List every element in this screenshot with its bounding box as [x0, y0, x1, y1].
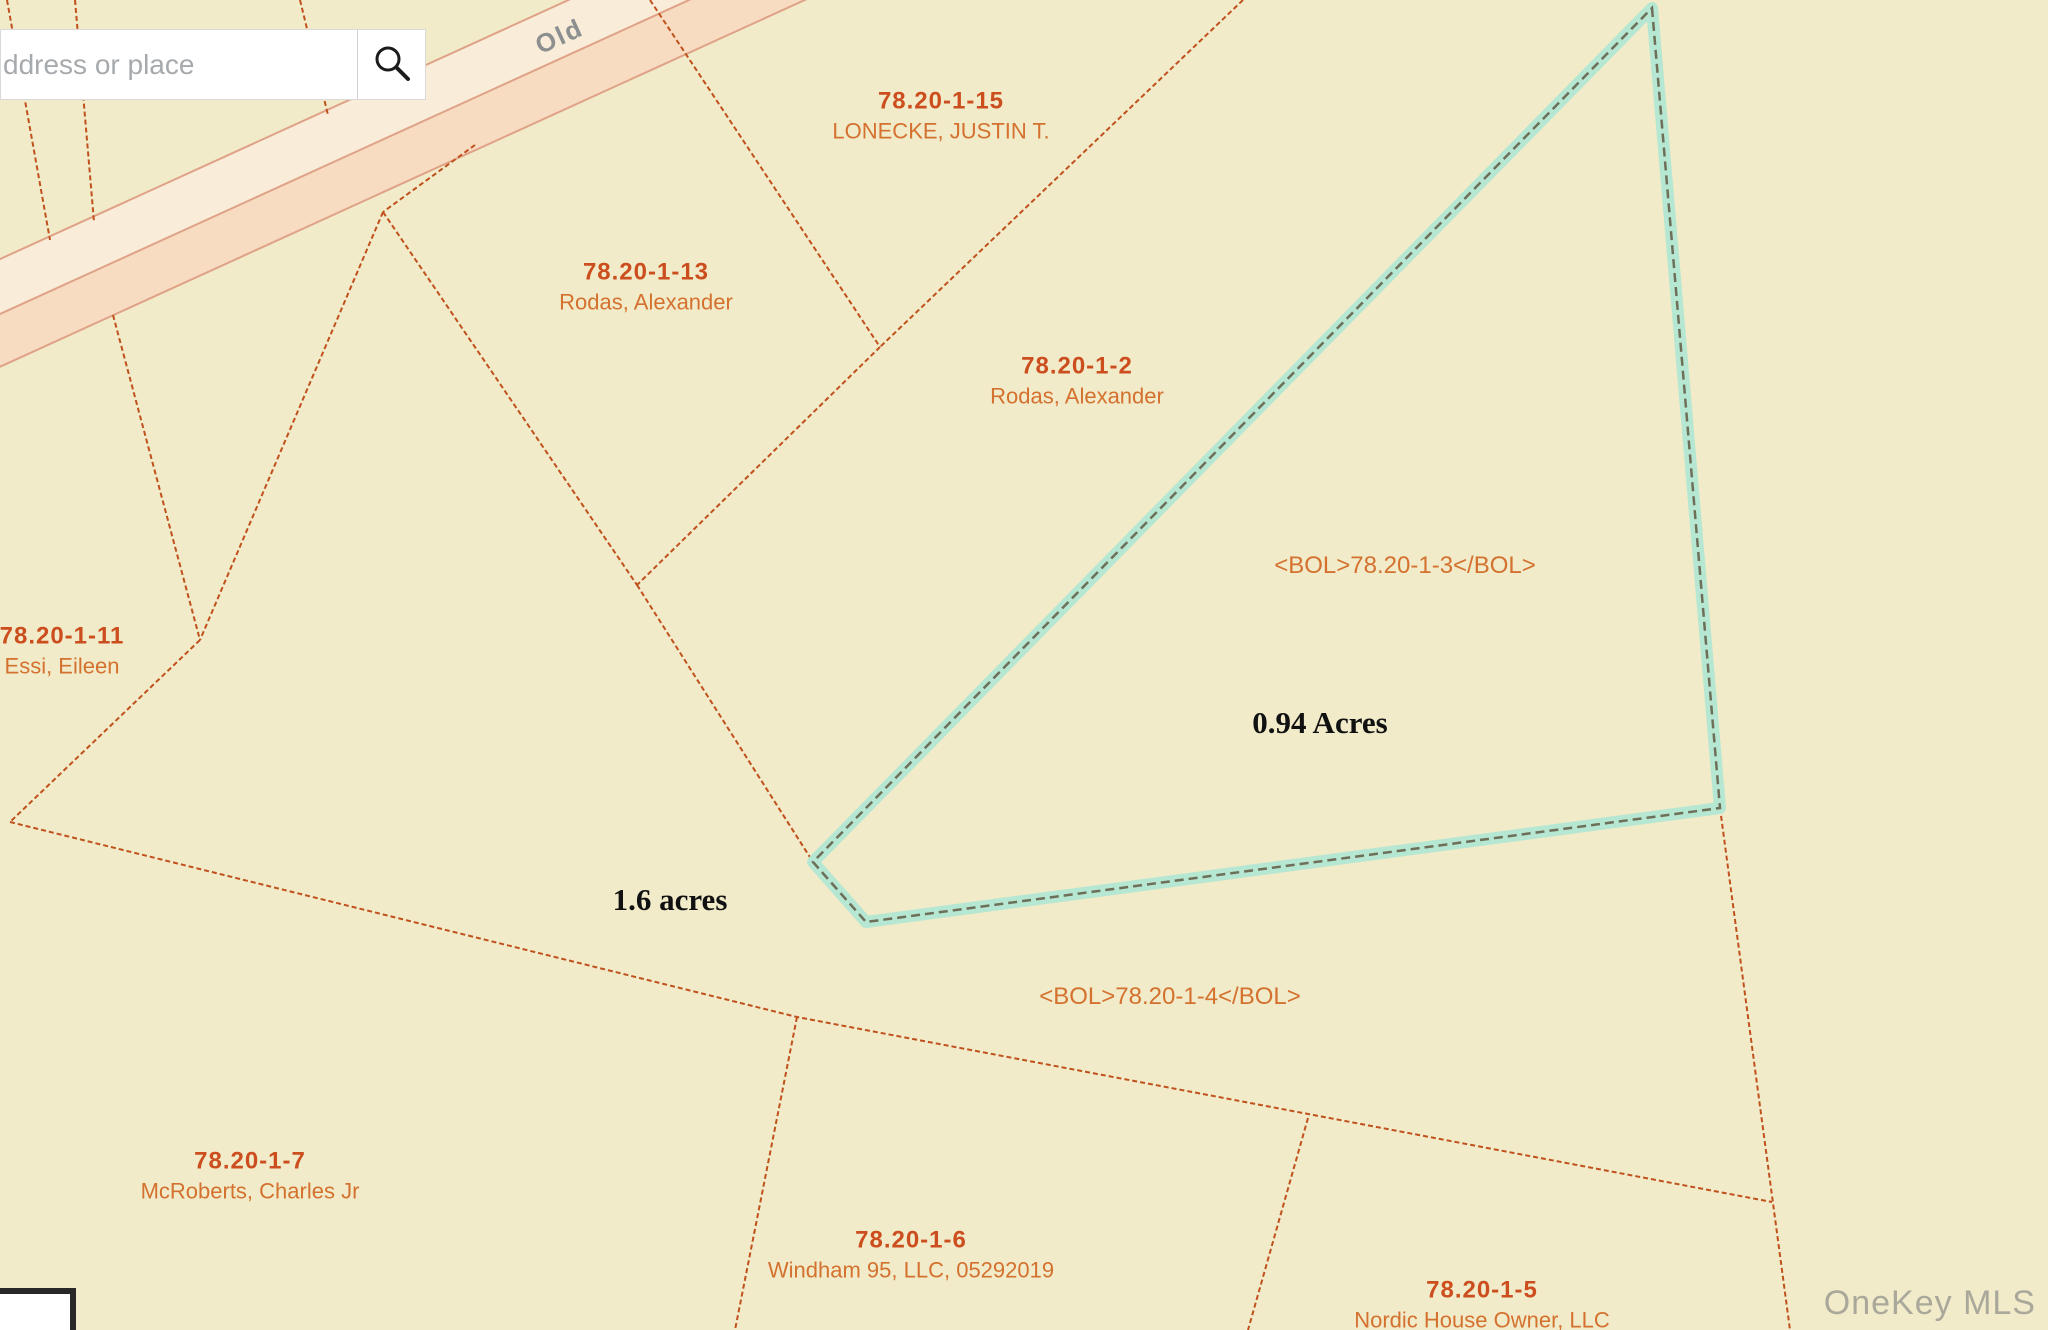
parcel-boundary-line — [10, 640, 200, 822]
parcel-boundary-line — [10, 822, 1772, 1202]
parcel-boundary-line — [1720, 808, 1790, 1330]
parcel-boundary-line — [880, 0, 1243, 347]
search-input[interactable] — [1, 30, 357, 99]
highlighted-parcel-outline[interactable] — [813, 8, 1720, 922]
map-viewport[interactable]: Old 78.20-1-15LONECKE, JUSTIN T.78.20-1-… — [0, 0, 2048, 1330]
parcel-boundary-line — [735, 1017, 797, 1330]
highlighted-parcel-halo — [813, 8, 1720, 922]
search-button[interactable] — [357, 30, 425, 99]
parcel-boundary-line — [637, 347, 880, 585]
search-icon — [370, 41, 414, 88]
search-box — [0, 29, 426, 100]
inset-locator-box[interactable] — [0, 1288, 76, 1330]
parcel-boundary-line — [1248, 1118, 1308, 1330]
parcel-map[interactable]: Old — [0, 0, 2048, 1330]
parcel-boundary-line — [113, 315, 200, 640]
parcel-boundary-line — [383, 212, 637, 585]
parcel-boundary-line — [200, 212, 383, 640]
parcel-boundary-line — [637, 585, 813, 862]
